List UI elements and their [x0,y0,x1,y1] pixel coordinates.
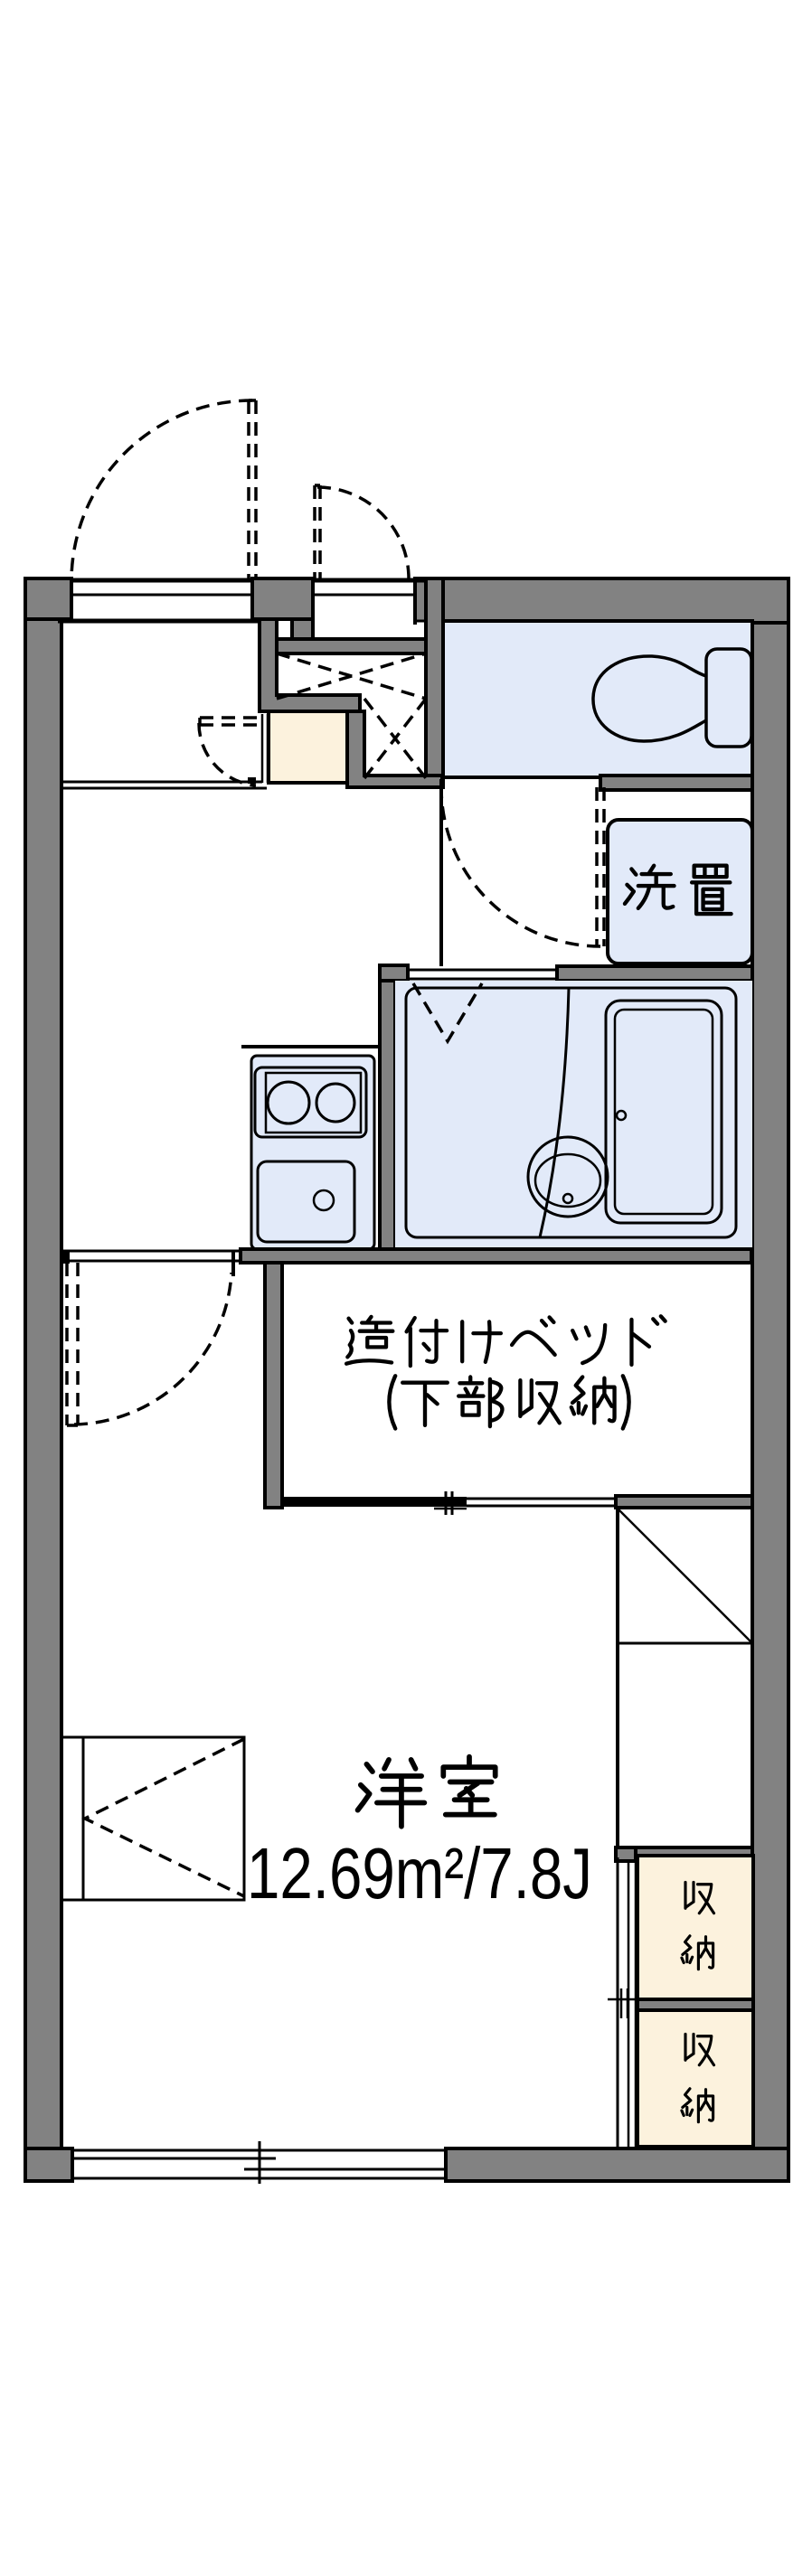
svg-text:12.69m²/7.8J: 12.69m²/7.8J [247,1833,592,1913]
